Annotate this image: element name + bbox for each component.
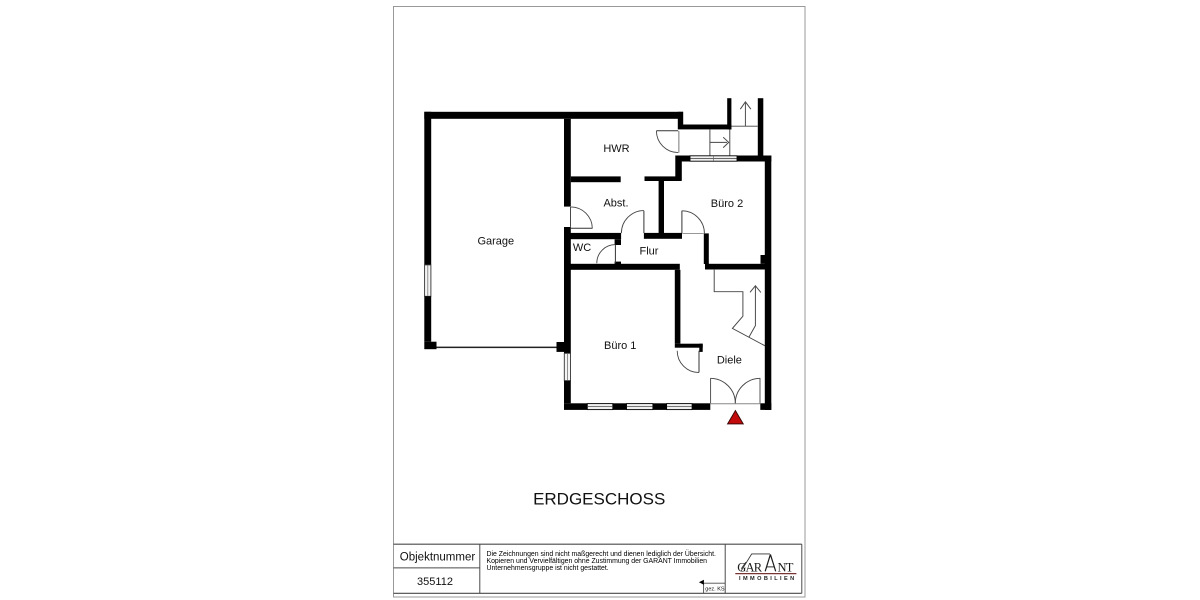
svg-text:Die Zeichnungen sind nicht maß: Die Zeichnungen sind nicht maßgerecht un… [487, 550, 717, 558]
svg-text:Büro 2: Büro 2 [711, 198, 743, 210]
svg-text:IMMOBILIEN: IMMOBILIEN [739, 576, 797, 582]
svg-text:gez. KS: gez. KS [705, 587, 725, 593]
svg-text:HWR: HWR [603, 143, 629, 155]
svg-text:GAR: GAR [737, 560, 763, 574]
svg-text:Kopieren und Vervielfältigen o: Kopieren und Vervielfältigen ohne Zustim… [487, 558, 708, 565]
svg-text:Diele: Diele [717, 354, 742, 366]
svg-text:Flur: Flur [640, 246, 659, 258]
svg-text:ERDGESCHOSS: ERDGESCHOSS [533, 489, 665, 508]
svg-text:WC: WC [573, 242, 591, 254]
svg-text:Abst.: Abst. [603, 197, 628, 209]
svg-text:Garage: Garage [477, 236, 514, 248]
svg-text:Unternehmensgruppe ist nicht g: Unternehmensgruppe ist nicht gestattet. [487, 565, 609, 572]
svg-text:NT: NT [778, 560, 794, 574]
svg-text:355112: 355112 [417, 576, 453, 588]
svg-text:Büro 1: Büro 1 [604, 340, 636, 352]
svg-text:Objektnummer: Objektnummer [400, 552, 476, 564]
